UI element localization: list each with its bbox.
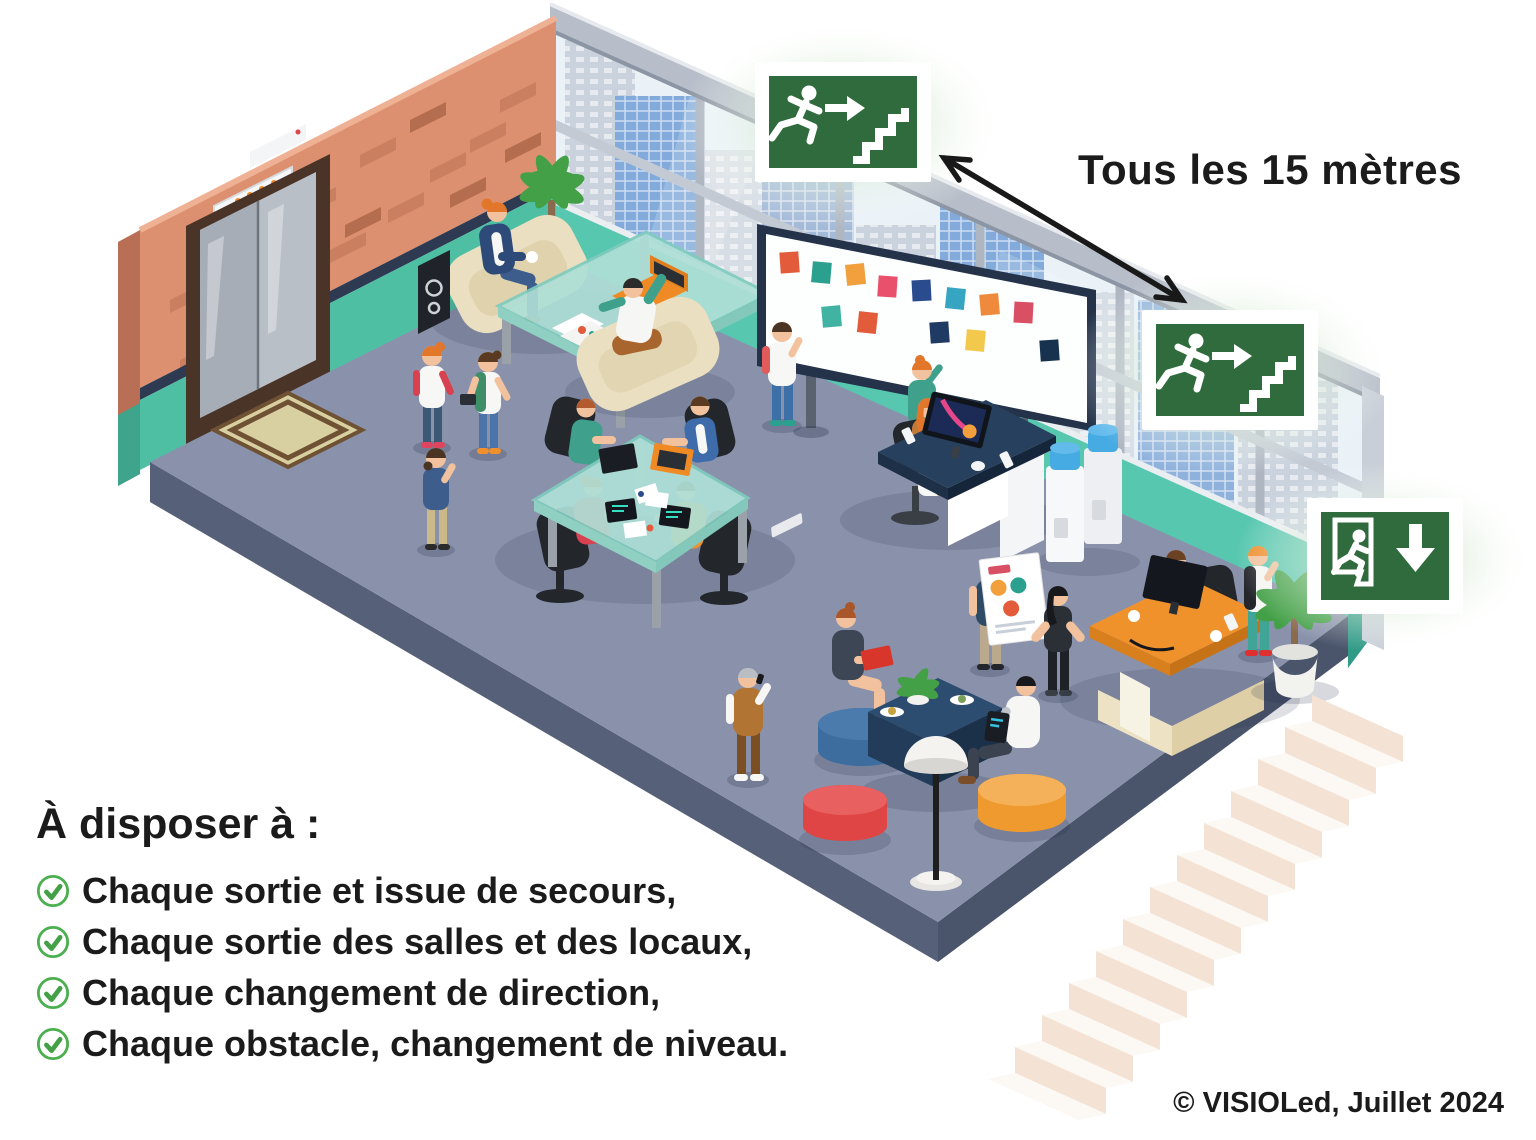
list-item: Chaque sortie des salles et des locaux, <box>36 916 996 967</box>
list-item: Chaque obstacle, changement de niveau. <box>36 1018 996 1069</box>
exit-sign-stairs-top <box>755 62 931 182</box>
check-icon <box>36 976 70 1010</box>
check-icon <box>36 925 70 959</box>
list-item-text: Chaque sortie des salles et des locaux, <box>82 921 752 963</box>
list-item-text: Chaque sortie et issue de secours, <box>82 870 676 912</box>
legend-list: Chaque sortie et issue de secours, Chaqu… <box>36 865 996 1069</box>
legend-heading: À disposer à : <box>36 800 996 849</box>
check-icon <box>36 1027 70 1061</box>
copyright-notice: © VISIOLed, Juillet 2024 <box>1173 1087 1504 1120</box>
placement-rules: À disposer à : Chaque sortie et issue de… <box>36 800 996 1069</box>
exit-sign-down-bottom <box>1307 498 1463 614</box>
list-item: Chaque changement de direction, <box>36 967 996 1018</box>
list-item-text: Chaque obstacle, changement de niveau. <box>82 1023 788 1065</box>
list-item-text: Chaque changement de direction, <box>82 972 660 1014</box>
interval-label: Tous les 15 mètres <box>1030 146 1510 194</box>
list-item: Chaque sortie et issue de secours, <box>36 865 996 916</box>
exit-sign-stairs-middle <box>1142 310 1318 430</box>
check-icon <box>36 874 70 908</box>
infographic-emergency-signage: Tous les 15 mètres À disposer à : Chaque… <box>0 0 1536 1140</box>
